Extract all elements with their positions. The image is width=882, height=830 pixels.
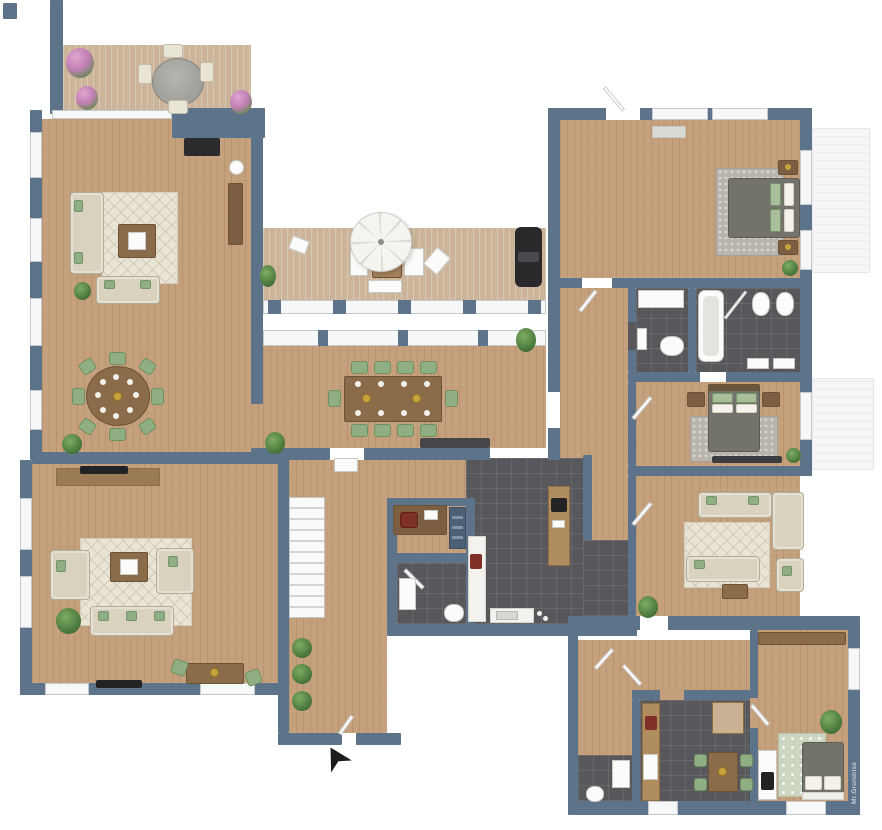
sofa-pillow <box>154 611 165 621</box>
wall-kitchen-right <box>583 455 592 540</box>
wall-dining-bottom-e <box>364 448 490 460</box>
railing-post <box>268 300 281 314</box>
wall-tv <box>96 680 142 688</box>
lounge-seat <box>368 280 402 293</box>
dining-chair <box>397 424 414 437</box>
sofa-pillow <box>748 496 759 505</box>
wall-livingroom-divider <box>32 452 278 464</box>
dining-chair <box>420 361 437 374</box>
flower-plant <box>66 48 94 78</box>
wall-bedroom2-left <box>628 382 636 466</box>
bed-pillow <box>770 183 781 206</box>
kitchen-side-counter <box>468 536 486 622</box>
espresso-machine <box>645 716 657 730</box>
door-gap <box>640 616 668 630</box>
plant <box>516 328 536 352</box>
wall-toilet <box>752 292 770 316</box>
centerpiece <box>362 394 371 403</box>
plate <box>355 381 361 387</box>
dining-chair <box>109 428 126 441</box>
bowl <box>718 767 727 776</box>
unit-kitchen-cabinet <box>712 702 744 734</box>
toilet <box>444 604 464 622</box>
grill-shelf <box>518 252 539 262</box>
dish <box>543 616 548 621</box>
sofa-pillow <box>74 200 83 212</box>
fireplace <box>184 138 220 156</box>
tv <box>761 772 774 790</box>
wall-leftwing-right-lower <box>251 346 263 404</box>
tv <box>80 466 128 474</box>
sofa-pillow <box>168 556 178 567</box>
dining-chair <box>351 424 368 437</box>
door-gap <box>582 278 612 288</box>
window <box>800 392 812 440</box>
shower-tray <box>399 578 416 610</box>
low-dresser <box>712 456 782 463</box>
flower-plant <box>230 90 252 114</box>
bed-pillow <box>736 404 757 413</box>
bed-pillow <box>784 183 794 206</box>
wall-fragment <box>3 3 17 19</box>
plate <box>355 410 361 416</box>
wall-living3-left <box>628 476 636 616</box>
entrance-arrow <box>320 741 352 772</box>
window <box>848 648 860 690</box>
plant <box>782 260 798 276</box>
dish <box>537 611 542 616</box>
sofa-pillow <box>782 566 792 576</box>
staircase <box>289 497 325 618</box>
balcony-ghost-top <box>812 128 870 273</box>
terrace-chair <box>200 62 214 82</box>
wardrobe <box>758 632 846 645</box>
plant <box>292 664 312 684</box>
kitchen-sink <box>496 611 518 620</box>
sofa-pillow <box>706 496 717 505</box>
coffee-table <box>722 584 748 599</box>
chair <box>740 754 753 767</box>
dining-opening-floor <box>251 404 263 448</box>
toilet <box>586 786 604 802</box>
dining-chair <box>109 352 126 365</box>
toilet <box>660 336 684 356</box>
dining-chair <box>420 424 437 437</box>
window-mullion <box>398 330 408 346</box>
window <box>648 801 678 815</box>
sofa-pillow <box>126 611 137 621</box>
plant <box>260 265 276 287</box>
shower <box>638 290 684 308</box>
wall-stair-side <box>278 452 289 620</box>
bathtub-inner <box>703 296 719 356</box>
bowl <box>210 668 219 677</box>
plant <box>292 638 312 658</box>
terrace-table <box>152 58 204 106</box>
window <box>712 108 768 120</box>
bidet <box>776 292 794 316</box>
window <box>800 230 812 270</box>
railing-post <box>333 300 346 314</box>
plate <box>424 381 430 387</box>
sofa-pillow <box>98 611 109 621</box>
plant <box>638 596 658 618</box>
centerpiece <box>113 392 122 401</box>
nightstand <box>687 392 705 407</box>
nightstand-lamp <box>785 244 791 250</box>
dining-chair <box>374 424 391 437</box>
washbasin <box>637 328 647 350</box>
wall-unit-kitchen-top <box>632 690 750 700</box>
wall-unit-bath-kitchen <box>632 700 640 803</box>
dining-chair <box>445 390 458 407</box>
window-mullion <box>478 330 488 346</box>
desk-chair <box>400 512 418 528</box>
wall-dining-bottom-w <box>251 448 330 460</box>
chair <box>694 754 707 767</box>
plate <box>401 410 407 416</box>
terrace-chair <box>138 64 152 84</box>
window <box>786 801 826 815</box>
plate <box>424 410 430 416</box>
bed-pillow <box>712 404 733 413</box>
wall-hall-left <box>278 618 289 733</box>
wall-bath-divider <box>688 288 696 372</box>
side-table-round <box>229 160 244 175</box>
sofa-pillow <box>104 280 115 289</box>
door-gap <box>548 392 560 428</box>
plate <box>127 407 133 413</box>
hallway-floor-upper <box>289 460 466 498</box>
plate <box>401 381 407 387</box>
plate <box>113 413 119 419</box>
sideboard <box>420 438 490 448</box>
balcony-ghost-mid <box>812 378 874 470</box>
bed-pillow <box>784 209 794 232</box>
armchair <box>50 550 90 600</box>
door-gap <box>700 372 726 382</box>
wall-bedroom2-bottom <box>628 466 812 476</box>
dining-chair <box>328 390 341 407</box>
drawer-line <box>452 526 463 529</box>
plant <box>292 691 312 711</box>
terrace-window-band <box>52 110 172 119</box>
dining-chair <box>351 361 368 374</box>
sofa-pillow <box>694 560 705 569</box>
window <box>200 683 255 695</box>
window <box>20 576 32 628</box>
railing-post <box>398 300 411 314</box>
wall-terrace-left <box>50 0 63 114</box>
washbasin <box>747 358 769 369</box>
plant <box>820 710 842 734</box>
sofa-pillow <box>74 252 83 264</box>
bed-pillow <box>712 393 733 403</box>
floorplan-canvas: Mr.Grundriss <box>0 0 882 830</box>
hall-console <box>334 458 358 472</box>
drawer-line <box>452 516 463 519</box>
bed-pillow <box>770 209 781 232</box>
parasol-pole <box>378 239 384 245</box>
cooktop <box>551 498 567 512</box>
plate <box>100 379 106 385</box>
unit-kitchen-sink <box>643 754 658 780</box>
laptop <box>424 510 438 520</box>
sofa-pillow <box>56 560 66 572</box>
bed-pillow <box>824 776 841 790</box>
espresso-machine <box>470 554 482 569</box>
sectional-sofa-chaise <box>772 492 804 550</box>
dining-chair <box>72 388 85 405</box>
plate <box>113 374 119 380</box>
watermark-text: Mr.Grundriss <box>851 748 860 804</box>
window-mullion <box>318 330 328 346</box>
railing-post <box>463 300 476 314</box>
dining-chair <box>151 388 164 405</box>
unit-hallway-floor-lower <box>578 700 632 755</box>
railing-post <box>528 300 541 314</box>
door-gap <box>628 322 636 350</box>
bed-pillow <box>805 776 822 790</box>
plate <box>127 379 133 385</box>
window <box>45 683 89 695</box>
tall-cabinet <box>228 183 243 245</box>
dining-chair <box>397 361 414 374</box>
plant <box>74 282 91 300</box>
chair <box>740 778 753 791</box>
dining-chair <box>374 361 391 374</box>
bed-pillow <box>736 393 757 403</box>
window <box>800 150 812 205</box>
flower-plant <box>76 86 98 110</box>
window <box>30 390 42 430</box>
plant <box>56 608 81 634</box>
plant <box>265 432 285 454</box>
wall-entry-right <box>356 733 401 745</box>
chair <box>694 778 707 791</box>
nightstand-lamp <box>785 164 791 170</box>
window <box>30 218 42 262</box>
vanity <box>612 760 630 788</box>
coffee-table-tray <box>128 232 146 250</box>
wall-leftwing-right <box>251 108 263 348</box>
nightstand <box>762 392 780 407</box>
washbasin <box>773 358 795 369</box>
plate <box>133 392 139 398</box>
kitchen-floor-east <box>583 540 628 624</box>
plate <box>95 392 101 398</box>
sofa-pillow <box>140 280 151 289</box>
window <box>30 298 42 346</box>
wall-unit-top <box>568 616 860 630</box>
plant <box>62 434 82 454</box>
window-bench <box>652 126 686 138</box>
window <box>652 108 708 120</box>
window <box>30 132 42 178</box>
cutting-board <box>552 520 565 528</box>
plate <box>378 381 384 387</box>
plant <box>786 448 801 463</box>
armchair <box>156 548 194 594</box>
wall-office-wc <box>387 553 475 563</box>
wall-entry-left <box>278 733 342 745</box>
door-gap <box>660 690 684 700</box>
drawer-line <box>452 536 463 539</box>
window <box>20 498 32 550</box>
plate <box>378 410 384 416</box>
coffee-table-tray <box>120 559 138 575</box>
centerpiece <box>412 394 421 403</box>
terrace-chair <box>168 100 188 114</box>
wall-unit-left <box>568 630 578 805</box>
bed-foot-blanket <box>802 792 844 800</box>
terrace-chair <box>163 44 183 58</box>
bed-headboard <box>708 384 760 391</box>
plate <box>100 407 106 413</box>
